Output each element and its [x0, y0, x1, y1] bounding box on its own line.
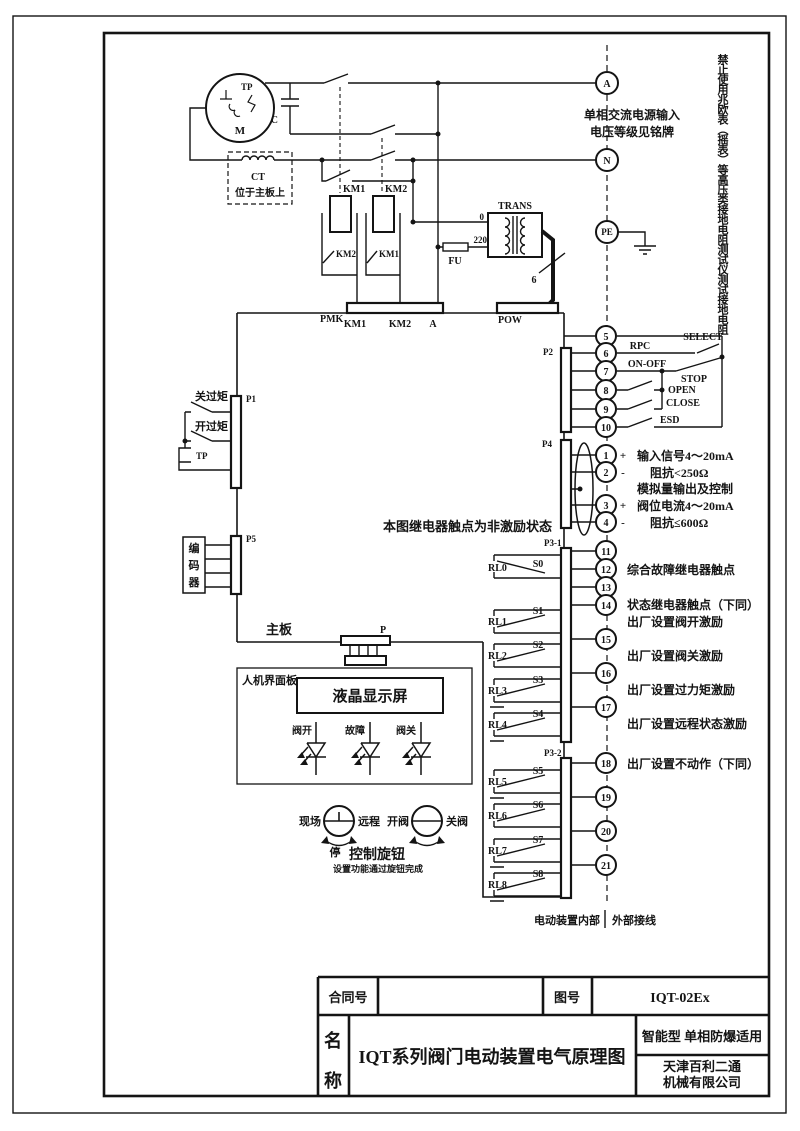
pmk-pin-a: A [429, 319, 437, 330]
p5-connector [231, 536, 241, 594]
term-pe-label: PE [601, 227, 613, 237]
note-no-action: 出厂设置不动作（下同） [627, 756, 759, 771]
km2-aux-label: KM2 [336, 249, 356, 259]
onoff-label: ON-OFF [628, 359, 666, 370]
term-5-num: 5 [604, 332, 609, 343]
p-connector-top [341, 636, 390, 645]
s5-label: S5 [533, 766, 544, 777]
pmk-strip [347, 303, 443, 313]
fuse [443, 243, 468, 251]
p4-minus2: - [621, 517, 625, 529]
close-overtorque-label: 关过矩 [195, 389, 228, 403]
p-connector-label: P [380, 625, 386, 636]
trans-tap220: 220 [474, 235, 488, 245]
term-15-num: 15 [601, 635, 611, 646]
p1-connector [231, 396, 241, 488]
term-12-num: 12 [601, 565, 611, 576]
p4-label: P4 [542, 439, 552, 449]
term-2-num: 2 [604, 468, 609, 479]
term-20-num: 20 [601, 827, 611, 838]
term-13-num: 13 [601, 583, 611, 594]
p4-connector [561, 440, 571, 528]
term-6-num: 6 [604, 349, 609, 360]
note-status-relay: 状态继电器触点（下同） [627, 597, 759, 612]
trans-tap0: 0 [480, 212, 485, 222]
p4-plus1: + [620, 450, 626, 462]
tb-name-char2: 称 [324, 1070, 342, 1091]
tb-drawing-title: IQT系列阀门电动装置电气原理图 [358, 1046, 625, 1067]
transformer-windings [505, 216, 525, 254]
mainboard-label: 主板 [266, 622, 293, 637]
tb-contract-label: 合同号 [328, 990, 367, 1005]
pow-strip [497, 303, 558, 313]
s4-label: S4 [533, 709, 544, 720]
km1-coil [330, 196, 351, 232]
p31-connector [561, 548, 571, 742]
p4-row1: 输入信号4～20mA [637, 448, 734, 463]
mainboard-outline [237, 313, 564, 897]
led-fault-label: 故障 [345, 724, 365, 737]
s1-label: S1 [533, 606, 544, 617]
dashed-lines [228, 45, 607, 905]
note-open-excite: 出厂设置阀开激励 [627, 614, 723, 629]
ct-label: CT [251, 172, 265, 183]
p4-minus1: - [621, 467, 625, 479]
note-close-excite: 出厂设置阀关激励 [627, 648, 723, 663]
rl6-label: RL6 [488, 811, 507, 822]
tb-figno-value: IQT-02Ex [650, 991, 709, 1006]
fuse-label: FU [448, 256, 461, 267]
term-11-num: 11 [601, 547, 610, 558]
knob-note: 设置功能通过旋钮完成 [333, 863, 423, 874]
rl4-label: RL4 [488, 720, 507, 731]
trans-label: TRANS [498, 201, 532, 212]
knob1-local-label: 现场 [299, 814, 321, 828]
schematic-svg: TP M C CT 位于主板上 KM1 KM2 KM2 KM1 PMK KM1 … [0, 0, 800, 1131]
transformer-box [488, 213, 542, 257]
term-17-num: 17 [601, 703, 611, 714]
p4-row2: 阻抗<250Ω [650, 465, 709, 480]
note-torque-excite: 出厂设置过力矩激励 [627, 682, 735, 697]
tp-contact-label: TP [196, 451, 208, 461]
boundary-outside-label: 外部接线 [611, 913, 656, 927]
p4-row5: 阻抗≤600Ω [650, 515, 709, 530]
encoder-char-1: 编 [189, 541, 200, 555]
term-14-num: 14 [601, 601, 611, 612]
tb-name-char1: 名 [324, 1030, 342, 1051]
note-remote-excite: 出厂设置远程状态激励 [627, 716, 747, 731]
term-21-num: 21 [601, 861, 611, 872]
knob2-open-label: 开阀 [387, 814, 409, 828]
secondary-wire-number: 6 [532, 275, 537, 286]
tb-type-note: 智能型 单相防爆适用 [642, 1029, 762, 1044]
pmk-label: PMK [320, 314, 344, 325]
hmi-panel-label: 人机界面板 [242, 673, 298, 687]
esd-label: ESD [660, 415, 679, 426]
pow-label: POW [498, 315, 522, 326]
note-fault-relay: 综合故障继电器触点 [627, 562, 735, 577]
knob1-stop-label: 停 [330, 845, 341, 859]
knob2-close-label: 关阀 [446, 814, 468, 828]
open-overtorque-label: 开过矩 [195, 419, 228, 433]
margin-warning-text: 禁止使用兆欧表（摇表）等高压类接地电阻测试仪测试接地电阻 [710, 54, 730, 344]
s2-label: S2 [533, 640, 544, 651]
km1-coil-label: KM1 [343, 184, 365, 195]
term-18-num: 18 [601, 759, 611, 770]
km2-coil [373, 196, 394, 232]
encoder-char-2: 码 [189, 559, 200, 572]
rl5-label: RL5 [488, 777, 507, 788]
rl7-label: RL7 [488, 846, 507, 857]
s7-label: S7 [533, 835, 544, 846]
p5-label: P5 [246, 534, 256, 544]
s6-label: S6 [533, 800, 544, 811]
rl0-label: RL0 [488, 563, 507, 574]
rl3-label: RL3 [488, 686, 507, 697]
stop-label: STOP [681, 374, 707, 385]
km2-coil-label: KM2 [385, 184, 407, 195]
p2-connector [561, 348, 571, 432]
p2-label: P2 [543, 347, 553, 357]
knob-arcs [325, 840, 441, 846]
s8-label: S8 [533, 869, 544, 880]
p-connector-bottom [345, 656, 386, 665]
junction-dots [183, 81, 725, 492]
encoder-char-3: 器 [188, 576, 201, 589]
p4-row4: 阀位电流4～20mA [637, 498, 734, 513]
pmk-pin-km2: KM2 [389, 319, 411, 330]
lcd-label: 液晶显示屏 [332, 687, 407, 705]
p32-connector [561, 758, 571, 898]
rl2-label: RL2 [488, 651, 507, 662]
p4-plus2: + [620, 500, 626, 512]
tb-company-line2: 机械有限公司 [663, 1075, 741, 1090]
p1-label: P1 [246, 394, 256, 404]
p4-row3: 模拟量输出及控制 [637, 481, 733, 496]
term-9-num: 9 [604, 405, 609, 416]
p32-label: P3-2 [544, 748, 562, 758]
knob-title: 控制旋钮 [349, 846, 405, 863]
term-n-label: N [603, 156, 611, 167]
term-10-num: 10 [601, 423, 611, 434]
knob1-remote-label: 远程 [358, 814, 380, 828]
term-7-num: 7 [604, 367, 609, 378]
ground-symbol [618, 232, 656, 254]
term-4-num: 4 [604, 518, 609, 529]
term-16-num: 16 [601, 669, 611, 680]
contactor-link-lines [340, 87, 382, 193]
boundary-inside-label: 电动装置内部 [534, 913, 600, 927]
km1-aux-label: KM1 [379, 249, 399, 259]
capacitor-label: C [271, 115, 278, 126]
term-a-label: A [603, 79, 611, 90]
power-note-line2: 电压等级见铭牌 [590, 124, 674, 139]
led-open-label: 阀开 [292, 724, 312, 737]
motor-tp-label: TP [241, 82, 253, 92]
term-8-num: 8 [604, 386, 609, 397]
close-label: CLOSE [666, 398, 700, 409]
ct-coil [242, 156, 274, 160]
schematic-page: TP M C CT 位于主板上 KM1 KM2 KM2 KM1 PMK KM1 … [0, 0, 800, 1131]
term-3-num: 3 [604, 501, 609, 512]
open-label: OPEN [668, 385, 697, 396]
relay-state-note: 本图继电器触点为非激励状态 [383, 519, 552, 534]
p31-label: P3-1 [544, 538, 562, 548]
power-note-line1: 单相交流电源输入 [584, 107, 680, 122]
tb-company-line1: 天津百利二通 [663, 1059, 741, 1074]
tb-figno-label: 图号 [554, 990, 580, 1005]
rpc-label: RPC [630, 341, 651, 352]
s0-label: S0 [533, 559, 544, 570]
control-knobs [321, 806, 445, 844]
transformer-secondary-cable [542, 231, 553, 304]
rl1-label: RL1 [488, 617, 507, 628]
term-19-num: 19 [601, 793, 611, 804]
led-close-label: 阀关 [396, 724, 416, 737]
ct-note: 位于主板上 [235, 186, 285, 199]
rl8-label: RL8 [488, 880, 507, 891]
s3-label: S3 [533, 675, 544, 686]
pmk-pin-km1: KM1 [344, 319, 366, 330]
term-1-num: 1 [604, 451, 609, 462]
motor-label: M [235, 125, 246, 137]
